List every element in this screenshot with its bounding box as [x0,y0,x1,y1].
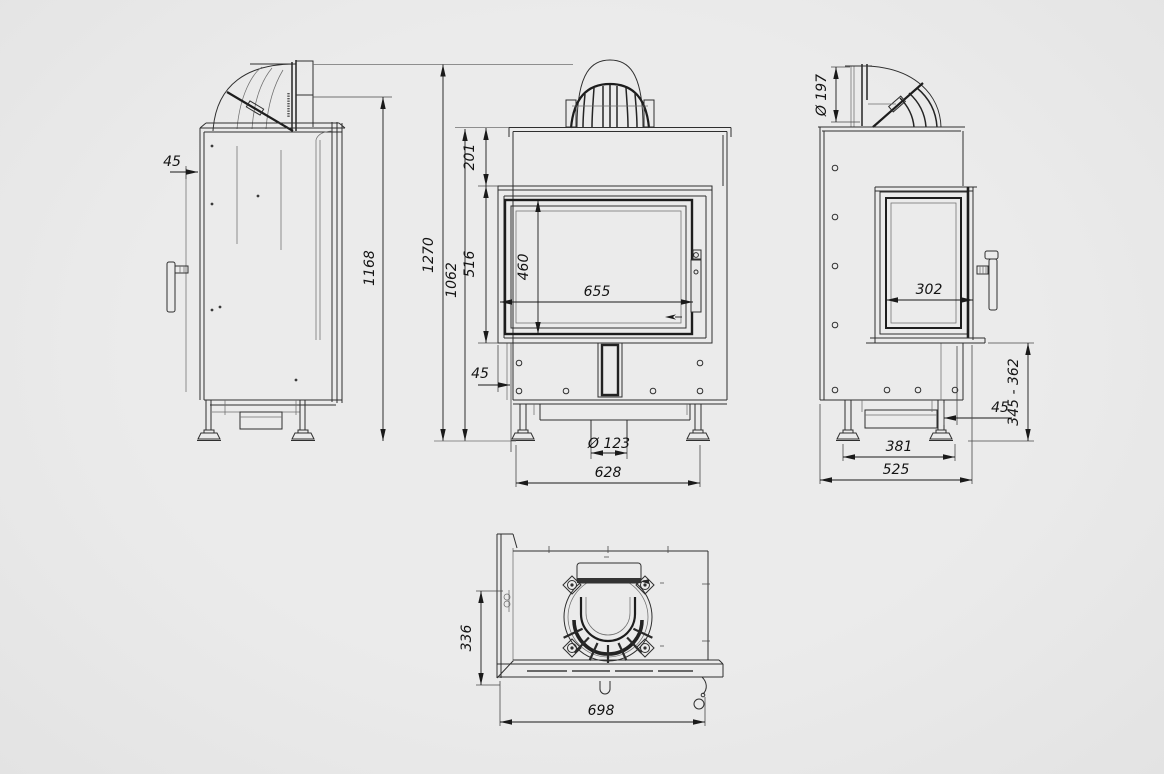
elbow-brace [227,92,293,131]
rivet-marks [211,145,298,382]
door-swing-arrow [665,314,676,319]
dimension-45-left: 45 [163,154,198,179]
flue-pipe-right [845,64,941,127]
dim-label-plate-height: 1062 [444,262,460,298]
door-handle-side [167,262,188,312]
glass-inner-line [511,206,686,328]
dim-label-overall-width: 698 [588,703,615,719]
damper-channel [602,345,618,395]
side-glass [886,198,961,328]
dimension-516: 516 [462,186,498,343]
dim-label-glass-width: 655 [584,284,611,300]
dim-label-base-height-range: 345 - 362 [1006,358,1022,425]
door-latch [691,250,701,312]
flue-collar-topview [563,563,664,663]
top-view: 336 698 [459,534,723,726]
door-right [866,187,998,343]
dim-label-body-height: 1168 [362,250,378,286]
dimension-460: 460 [516,200,538,334]
left-side-view: 45 1168 [163,60,392,441]
drawer-right [865,410,937,428]
dim-label-shield-offset: 45 [163,154,181,170]
dim-label-door-height: 516 [462,251,478,278]
ash-drawer [240,412,282,429]
dim-label-total-height: 1270 [421,237,437,273]
dim-label-wall-depth: 336 [459,625,475,652]
dimension-201: 201 [462,128,498,186]
dim-label-frame-offset: 45 [471,366,489,382]
legs-side [197,400,315,441]
dimension-45-right: 45 [944,346,1012,425]
right-side-view: Ø 197 302 45 345 - 362 381 525 [814,64,1034,484]
dimension-336: 336 [459,591,503,685]
dimension-698: 698 [500,681,705,726]
front-lip-topview [497,660,723,709]
door-pull-chain [694,677,706,709]
dimension-45-front: 45 [471,343,511,452]
rivets-right [832,165,958,393]
base-right [836,400,953,441]
dimension-1270: 1270 [313,65,573,442]
dimension-diameter-197: Ø 197 [814,67,860,122]
body-right [818,127,965,400]
damper-band [577,578,641,583]
dim-label-outlet-diameter: Ø 123 [587,436,630,452]
top-plate-front [455,128,731,138]
chimney-collar-crown [566,60,654,128]
elbow-brace-right [873,83,923,127]
dimension-diameter-123: Ø 123 [587,436,630,459]
dimension-655: 655 [500,284,693,302]
dimension-302: 302 [886,282,973,300]
dimension-525: 525 [820,345,972,484]
dim-label-collar-offset: 201 [462,144,478,171]
dim-label-flue-diameter: Ø 197 [814,74,830,117]
fireplace-technical-drawing: 45 1168 [0,0,1164,774]
glass-frame [505,200,692,334]
door-handle-right [977,251,998,310]
dim-label-feet-width: 628 [595,465,622,481]
dim-label-side-glass-width: 302 [916,282,943,298]
dim-label-feet-depth: 381 [886,439,913,455]
dimension-381: 381 [843,439,955,461]
side-wall-top [497,534,517,678]
rivets-front [516,360,703,394]
flue-elbow [213,60,313,131]
dim-label-glass-height: 460 [516,254,532,281]
u-bracket [600,681,610,694]
stove-body-side [186,122,345,412]
dimension-345-362: 345 - 362 [968,343,1034,441]
base-front [511,343,710,441]
dim-label-depth: 525 [883,462,910,478]
dimension-1168: 1168 [313,97,392,441]
